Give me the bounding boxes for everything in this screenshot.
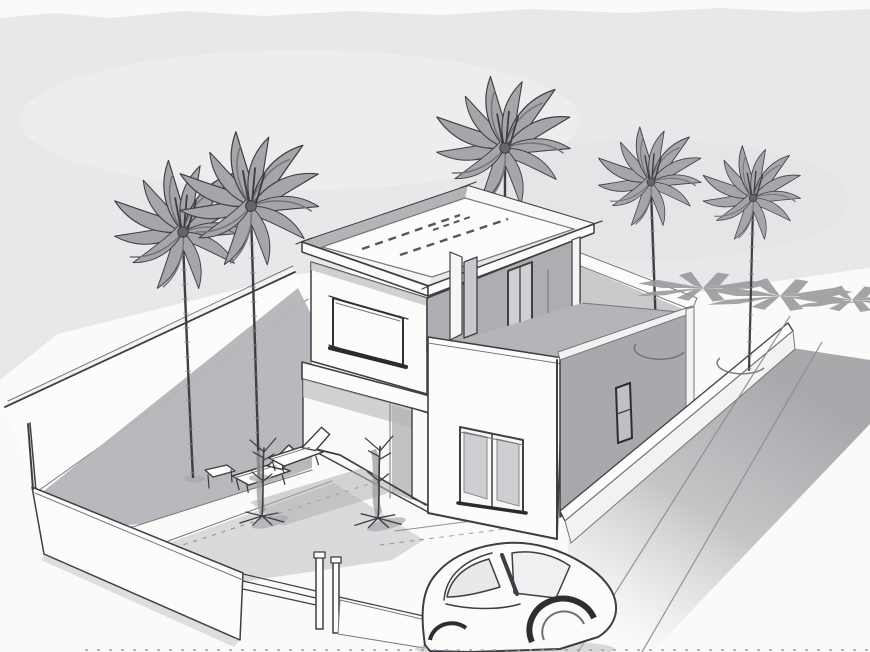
corner-glass [464, 257, 477, 338]
side-window [616, 383, 632, 443]
porch-column [412, 408, 428, 505]
villa-sketch: Architectural concept sketch: modern two… [0, 0, 870, 652]
ground-floor-front-wall [428, 337, 563, 539]
entry-door [458, 427, 526, 513]
sketch-canvas: Architectural concept sketch: modern two… [0, 0, 870, 652]
